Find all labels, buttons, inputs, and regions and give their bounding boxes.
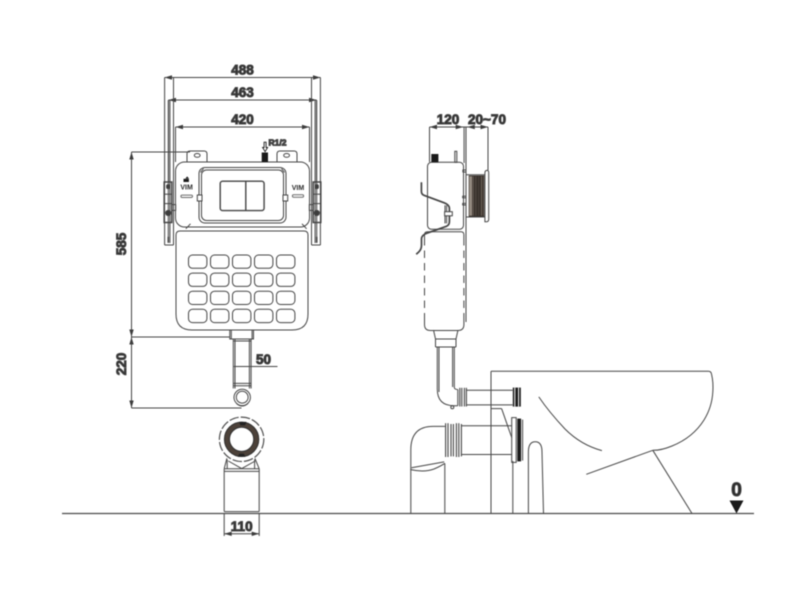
svg-text:120: 120	[437, 112, 460, 127]
svg-text:220: 220	[114, 353, 129, 376]
svg-text:488: 488	[231, 63, 254, 78]
svg-text:585: 585	[114, 232, 129, 255]
svg-text:420: 420	[231, 112, 254, 127]
svg-text:20~70: 20~70	[468, 112, 506, 127]
svg-text:463: 463	[231, 85, 254, 100]
svg-text:VIM: VIM	[180, 185, 193, 192]
svg-text:VIM: VIM	[292, 185, 305, 192]
svg-text:R1/2: R1/2	[269, 138, 287, 148]
svg-text:110: 110	[231, 519, 253, 534]
svg-text:0: 0	[731, 480, 742, 501]
svg-text:50: 50	[256, 352, 271, 367]
